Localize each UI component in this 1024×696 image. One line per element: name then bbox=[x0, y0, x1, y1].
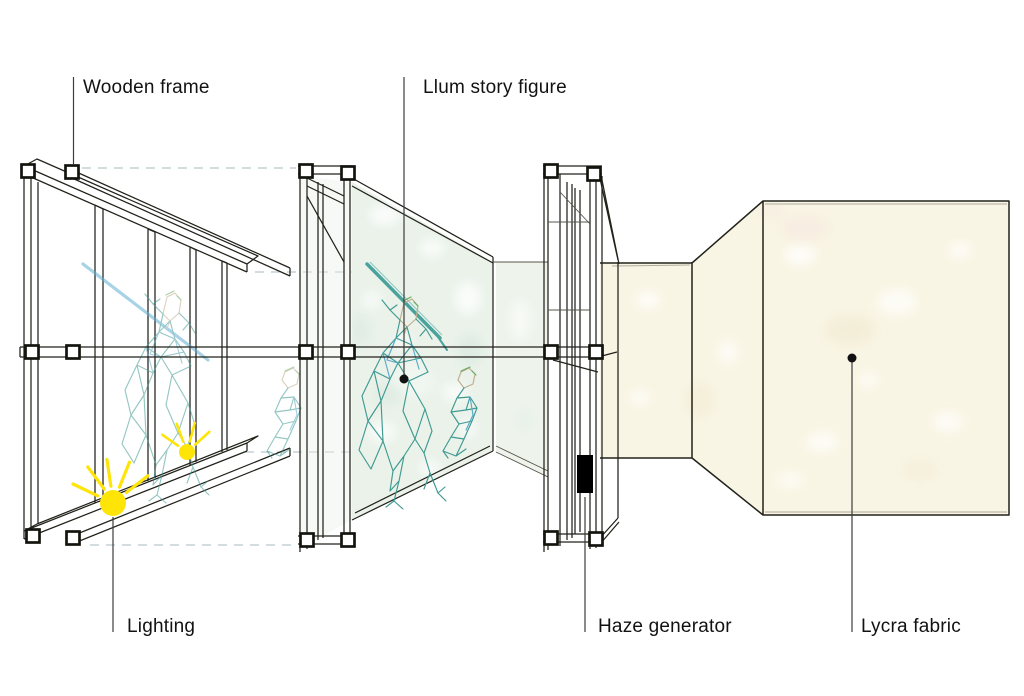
lighting-sun-small-icon bbox=[162, 423, 209, 460]
exploded-diagram-drawing bbox=[0, 0, 1024, 696]
haze-generator-box bbox=[577, 455, 593, 493]
callout-dot-figure bbox=[400, 375, 409, 384]
scrim-side-face bbox=[493, 262, 548, 478]
wooden-frame-drawing bbox=[24, 159, 290, 544]
fabric-drawing bbox=[600, 201, 1009, 515]
label-haze-generator: Haze generator bbox=[598, 616, 732, 637]
diagram-canvas: Wooden frame Llum story figure Lighting … bbox=[0, 0, 1024, 696]
label-lighting: Lighting bbox=[127, 616, 195, 637]
wooden-frame-projected-figures bbox=[83, 264, 301, 503]
label-wooden-frame: Wooden frame bbox=[83, 77, 210, 98]
label-lycra-fabric: Lycra fabric bbox=[861, 616, 961, 637]
callout-dot-fabric bbox=[848, 354, 857, 363]
label-llum-story-figure: Llum story figure bbox=[423, 77, 567, 98]
